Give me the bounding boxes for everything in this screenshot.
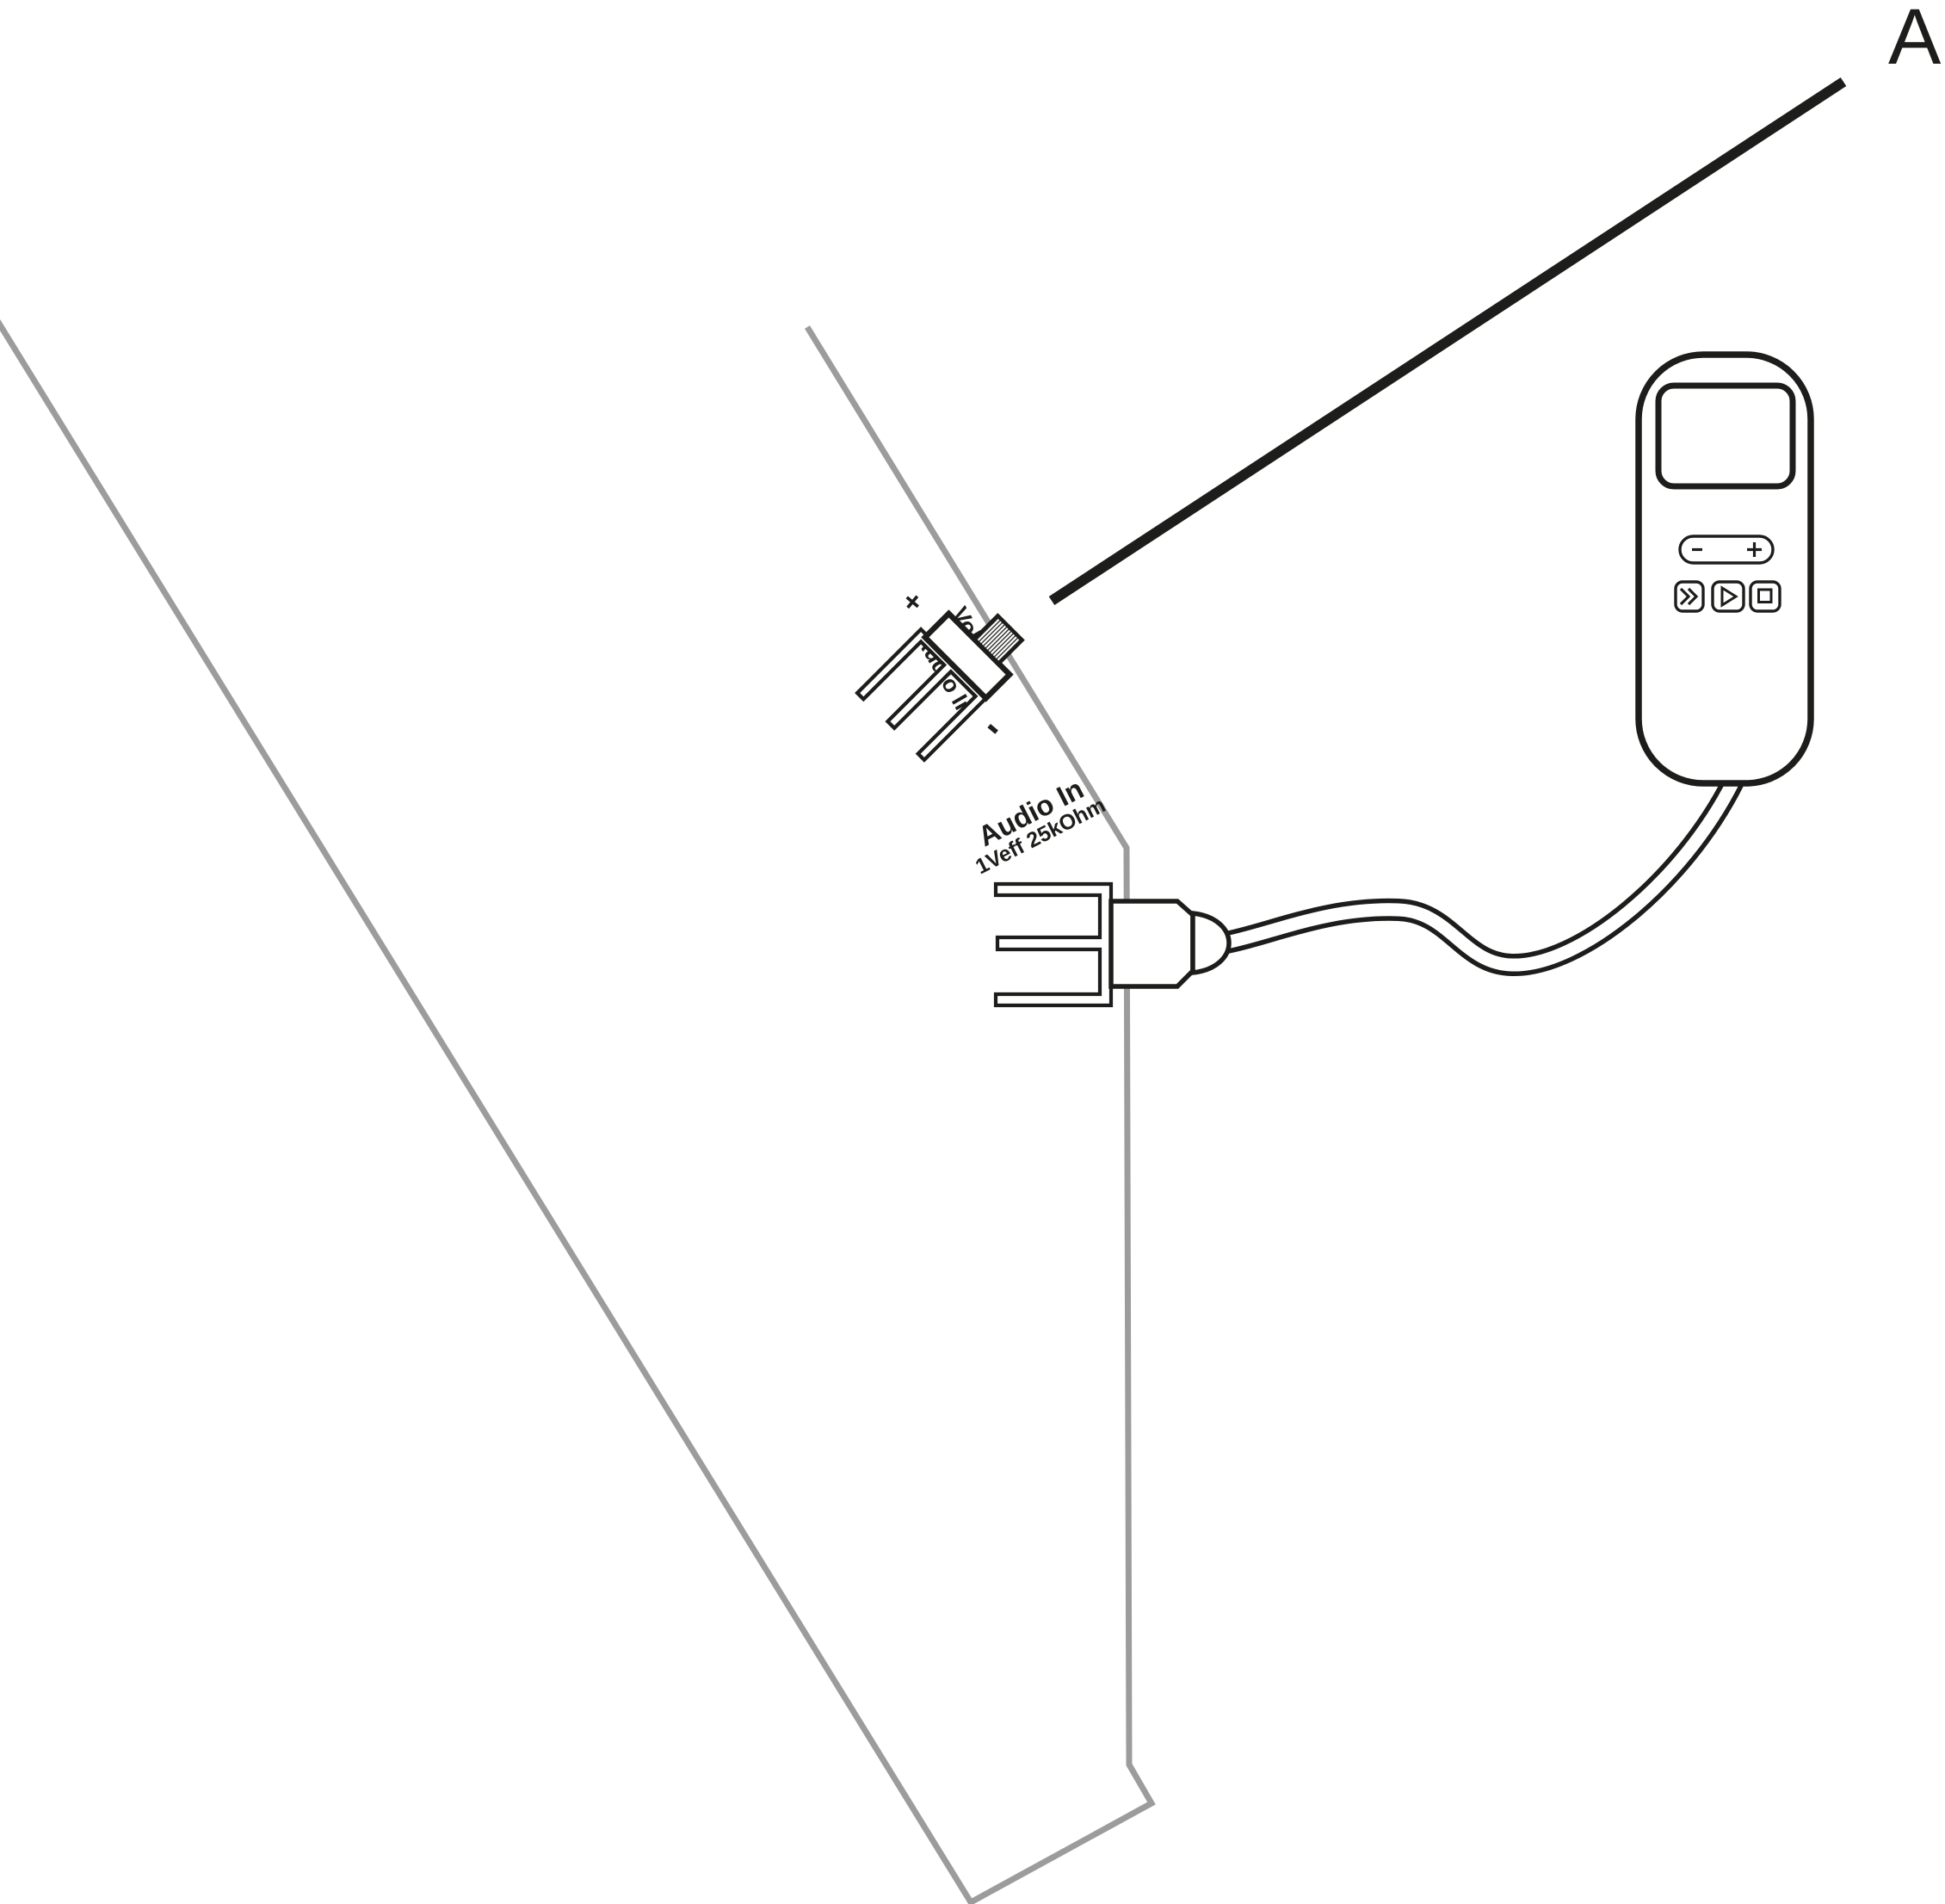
switch-plus-label: + — [895, 584, 929, 621]
play-button[interactable] — [1713, 582, 1744, 611]
media-player — [1639, 355, 1811, 783]
audio-plug-body — [1111, 901, 1193, 986]
diagram-canvas: A + Volume Audio In - Audio In 1Veff 25k… — [0, 0, 1945, 1904]
figure-label: A — [1888, 0, 1942, 81]
switch-minus-label: - — [976, 705, 1015, 748]
audio-in-socket — [996, 884, 1111, 1005]
panel-outline — [0, 319, 1152, 1902]
audio-plug-tip — [1193, 913, 1229, 973]
volume-slide-switch-assembly: + Volume Audio In - — [857, 584, 1033, 760]
audio-cable — [1222, 782, 1733, 965]
diagram-page: A + Volume Audio In - Audio In 1Veff 25k… — [0, 0, 1945, 1904]
stop-button[interactable] — [1750, 582, 1780, 611]
player-screen — [1658, 386, 1793, 486]
